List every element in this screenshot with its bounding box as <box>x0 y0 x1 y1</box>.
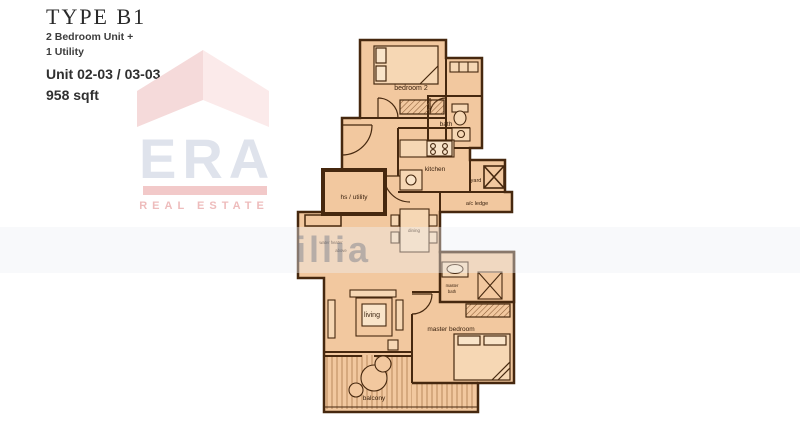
label-ac-ledge: a/c ledge <box>466 201 488 207</box>
label-note-line2: above <box>335 248 347 253</box>
label-balcony: balcony <box>363 395 386 402</box>
floorplan-page: TYPE B1 2 Bedroom Unit + 1 Utility Unit … <box>0 0 800 423</box>
label-note-line1: water heater <box>319 240 343 245</box>
kitchen-sink <box>406 175 416 185</box>
label-living: living <box>364 312 380 319</box>
label-master-bath-line1: master <box>446 283 459 288</box>
label-hs-utility: hs / utility <box>340 194 368 201</box>
label-bath: bath <box>440 121 453 128</box>
master-wardrobe <box>466 304 510 317</box>
bedroom2-wardrobe <box>400 100 444 114</box>
label-master-bedroom: master bedroom <box>427 326 474 333</box>
label-yard: yard <box>471 178 482 184</box>
label-bedroom2: bedroom 2 <box>394 85 428 92</box>
label-dining: dining <box>408 228 421 233</box>
label-master-bath-line2: bath <box>448 289 457 294</box>
label-kitchen: kitchen <box>425 166 446 173</box>
yard-ac-unit <box>484 166 504 188</box>
floorplan-svg: bedroom 2 bath kitchen yard a/c ledge hs… <box>0 0 800 423</box>
